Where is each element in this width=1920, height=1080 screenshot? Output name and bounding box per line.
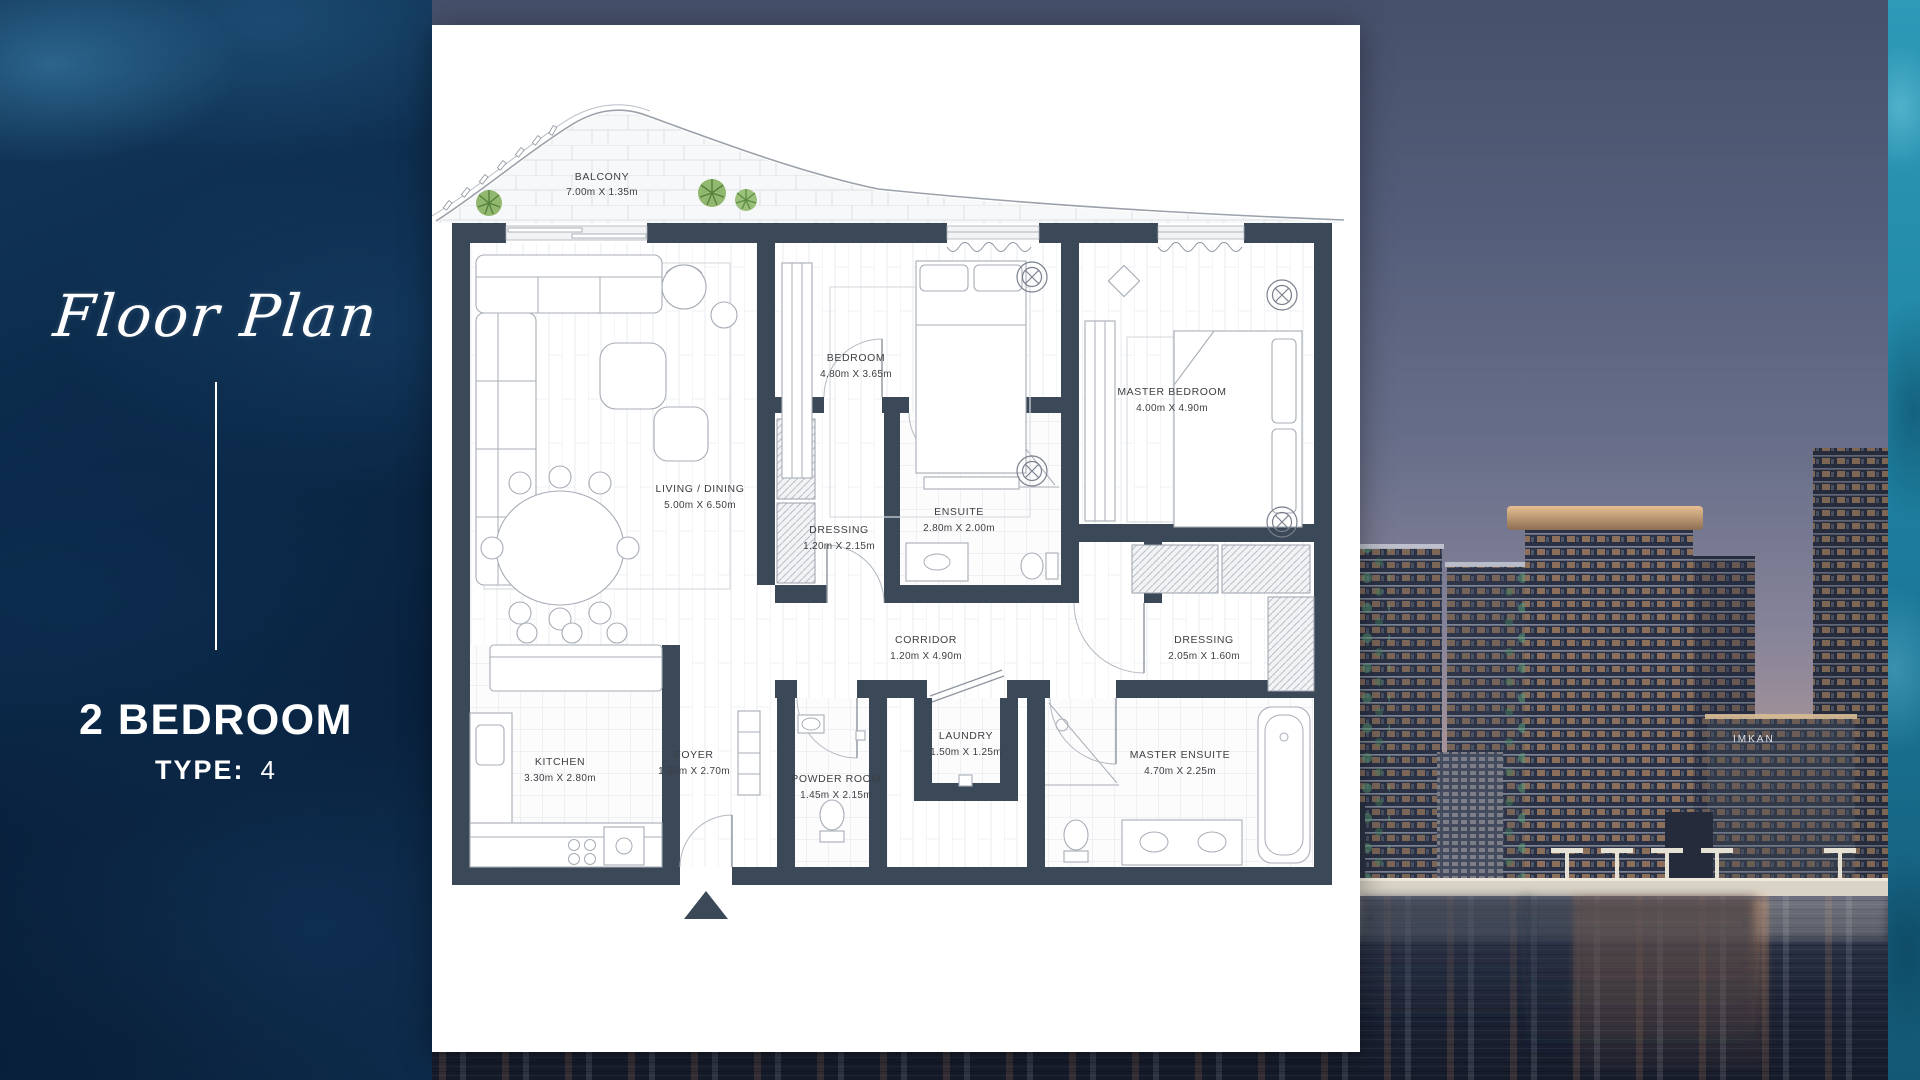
- plant-icon: [476, 190, 502, 216]
- room-label-corridor: CORRIDOR: [895, 634, 957, 646]
- room-dims-master-dressing: 2.05m X 1.60m: [1168, 651, 1240, 662]
- room-label-master-ensuite: MASTER ENSUITE: [1130, 749, 1231, 761]
- building-sign: IMKAN: [1733, 734, 1775, 745]
- midrise-building: [1437, 752, 1503, 895]
- foyer-fixtures: [738, 711, 760, 795]
- unit-type-row: TYPE: 4: [155, 755, 277, 786]
- room-dims-balcony: 7.00m X 1.35m: [566, 187, 638, 198]
- teal-water-strip: [1888, 0, 1920, 1080]
- room-dims-ensuite: 2.80m X 2.00m: [923, 523, 995, 534]
- room-dims-living-dining: 5.00m X 6.50m: [664, 500, 736, 511]
- room-dims-foyer: 1.55m X 2.70m: [658, 766, 730, 777]
- unit-type-title: 2 BEDROOM: [79, 696, 353, 745]
- room-label-master-dressing: DRESSING: [1174, 634, 1234, 646]
- room-label-living-dining: LIVING / DINING: [656, 483, 745, 495]
- page-title-script: Floor Plan: [50, 282, 381, 350]
- type-label: TYPE:: [155, 755, 245, 786]
- floor-plan-card: BALCONY 7.00m X 1.35m LIVING / DINING 5.…: [432, 25, 1360, 1052]
- left-texture-panel: Floor Plan 2 BEDROOM TYPE: 4: [0, 0, 432, 1080]
- room-label-foyer: FOYER: [674, 749, 713, 761]
- room-label-laundry: LAUNDRY: [939, 730, 993, 742]
- room-label-bedroom: BEDROOM: [827, 352, 885, 364]
- room-label-powder-room: POWDER ROOM: [791, 773, 880, 785]
- room-label-dressing: DRESSING: [809, 524, 869, 536]
- room-dims-master-ensuite: 4.70m X 2.25m: [1144, 766, 1216, 777]
- room-dims-laundry: 1.50m X 1.25m: [930, 747, 1002, 758]
- room-dims-corridor: 1.20m X 4.90m: [890, 651, 962, 662]
- room-dims-powder-room: 1.45m X 2.15m: [800, 790, 872, 801]
- entrance-arrow: [684, 891, 728, 919]
- brochure-page: IMKAN Floo: [0, 0, 1920, 1080]
- room-label-master-bedroom: MASTER BEDROOM: [1117, 386, 1226, 398]
- room-dims-bedroom: 4.80m X 3.65m: [820, 369, 892, 380]
- balcony-area: [432, 105, 1344, 223]
- floor-plan-drawing: BALCONY 7.00m X 1.35m LIVING / DINING 5.…: [432, 25, 1360, 1052]
- room-label-ensuite: ENSUITE: [934, 506, 984, 518]
- room-dims-master-bedroom: 4.00m X 4.90m: [1136, 403, 1208, 414]
- room-dims-dressing: 1.20m X 2.15m: [803, 541, 875, 552]
- laundry-fixture: [959, 775, 972, 786]
- type-value: 4: [261, 755, 277, 786]
- room-label-kitchen: KITCHEN: [535, 756, 585, 768]
- reflections: [1345, 897, 1888, 1080]
- room-label-balcony: BALCONY: [575, 171, 629, 183]
- room-dims-kitchen: 3.30m X 2.80m: [524, 773, 596, 784]
- vertical-divider: [215, 382, 217, 650]
- plant-icon: [735, 189, 757, 211]
- plant-icon: [698, 179, 726, 207]
- tower-podium: IMKAN: [1705, 714, 1857, 895]
